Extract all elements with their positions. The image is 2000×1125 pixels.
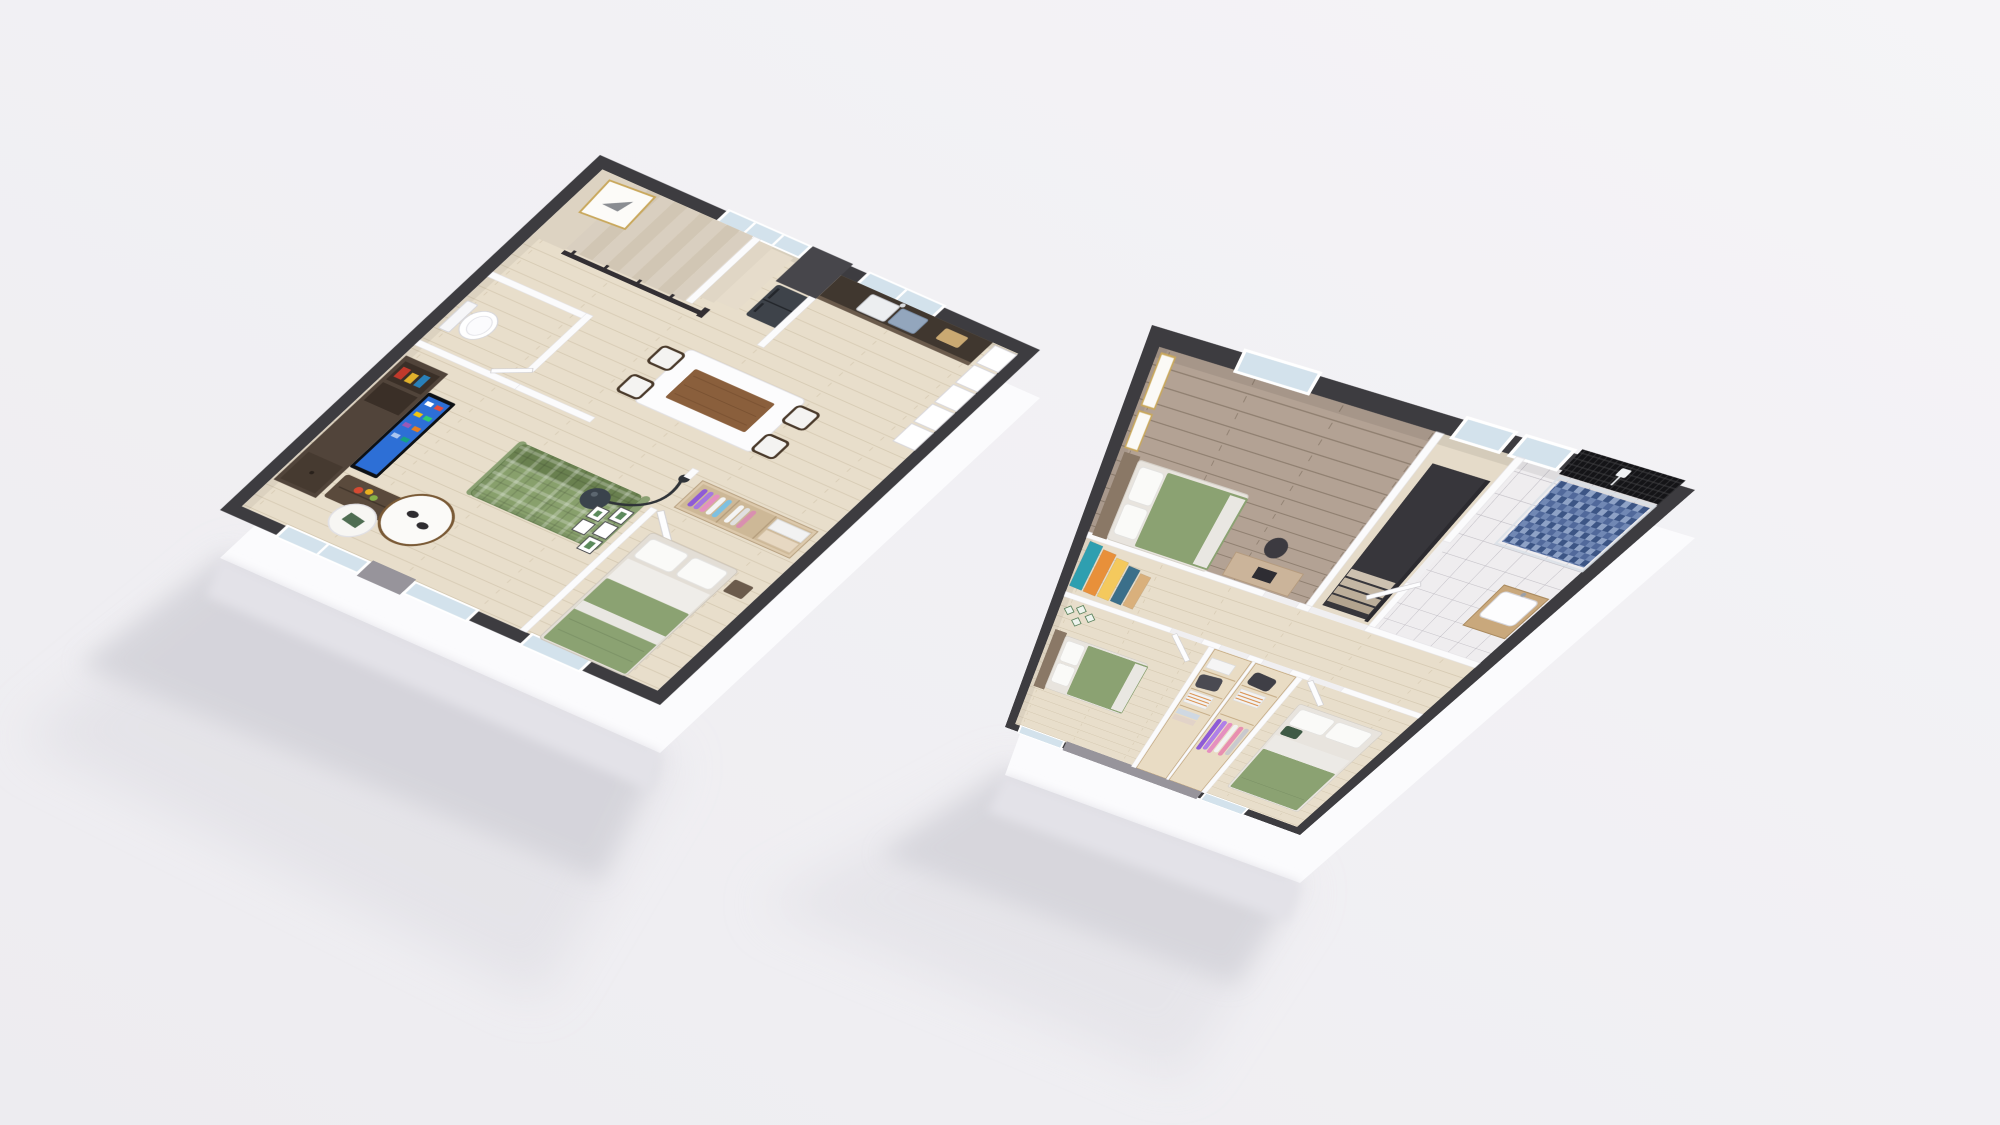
scene-canvas: 3D cutaway floor plan render of a two-st…: [0, 0, 2000, 1125]
wc-door: [491, 368, 533, 373]
